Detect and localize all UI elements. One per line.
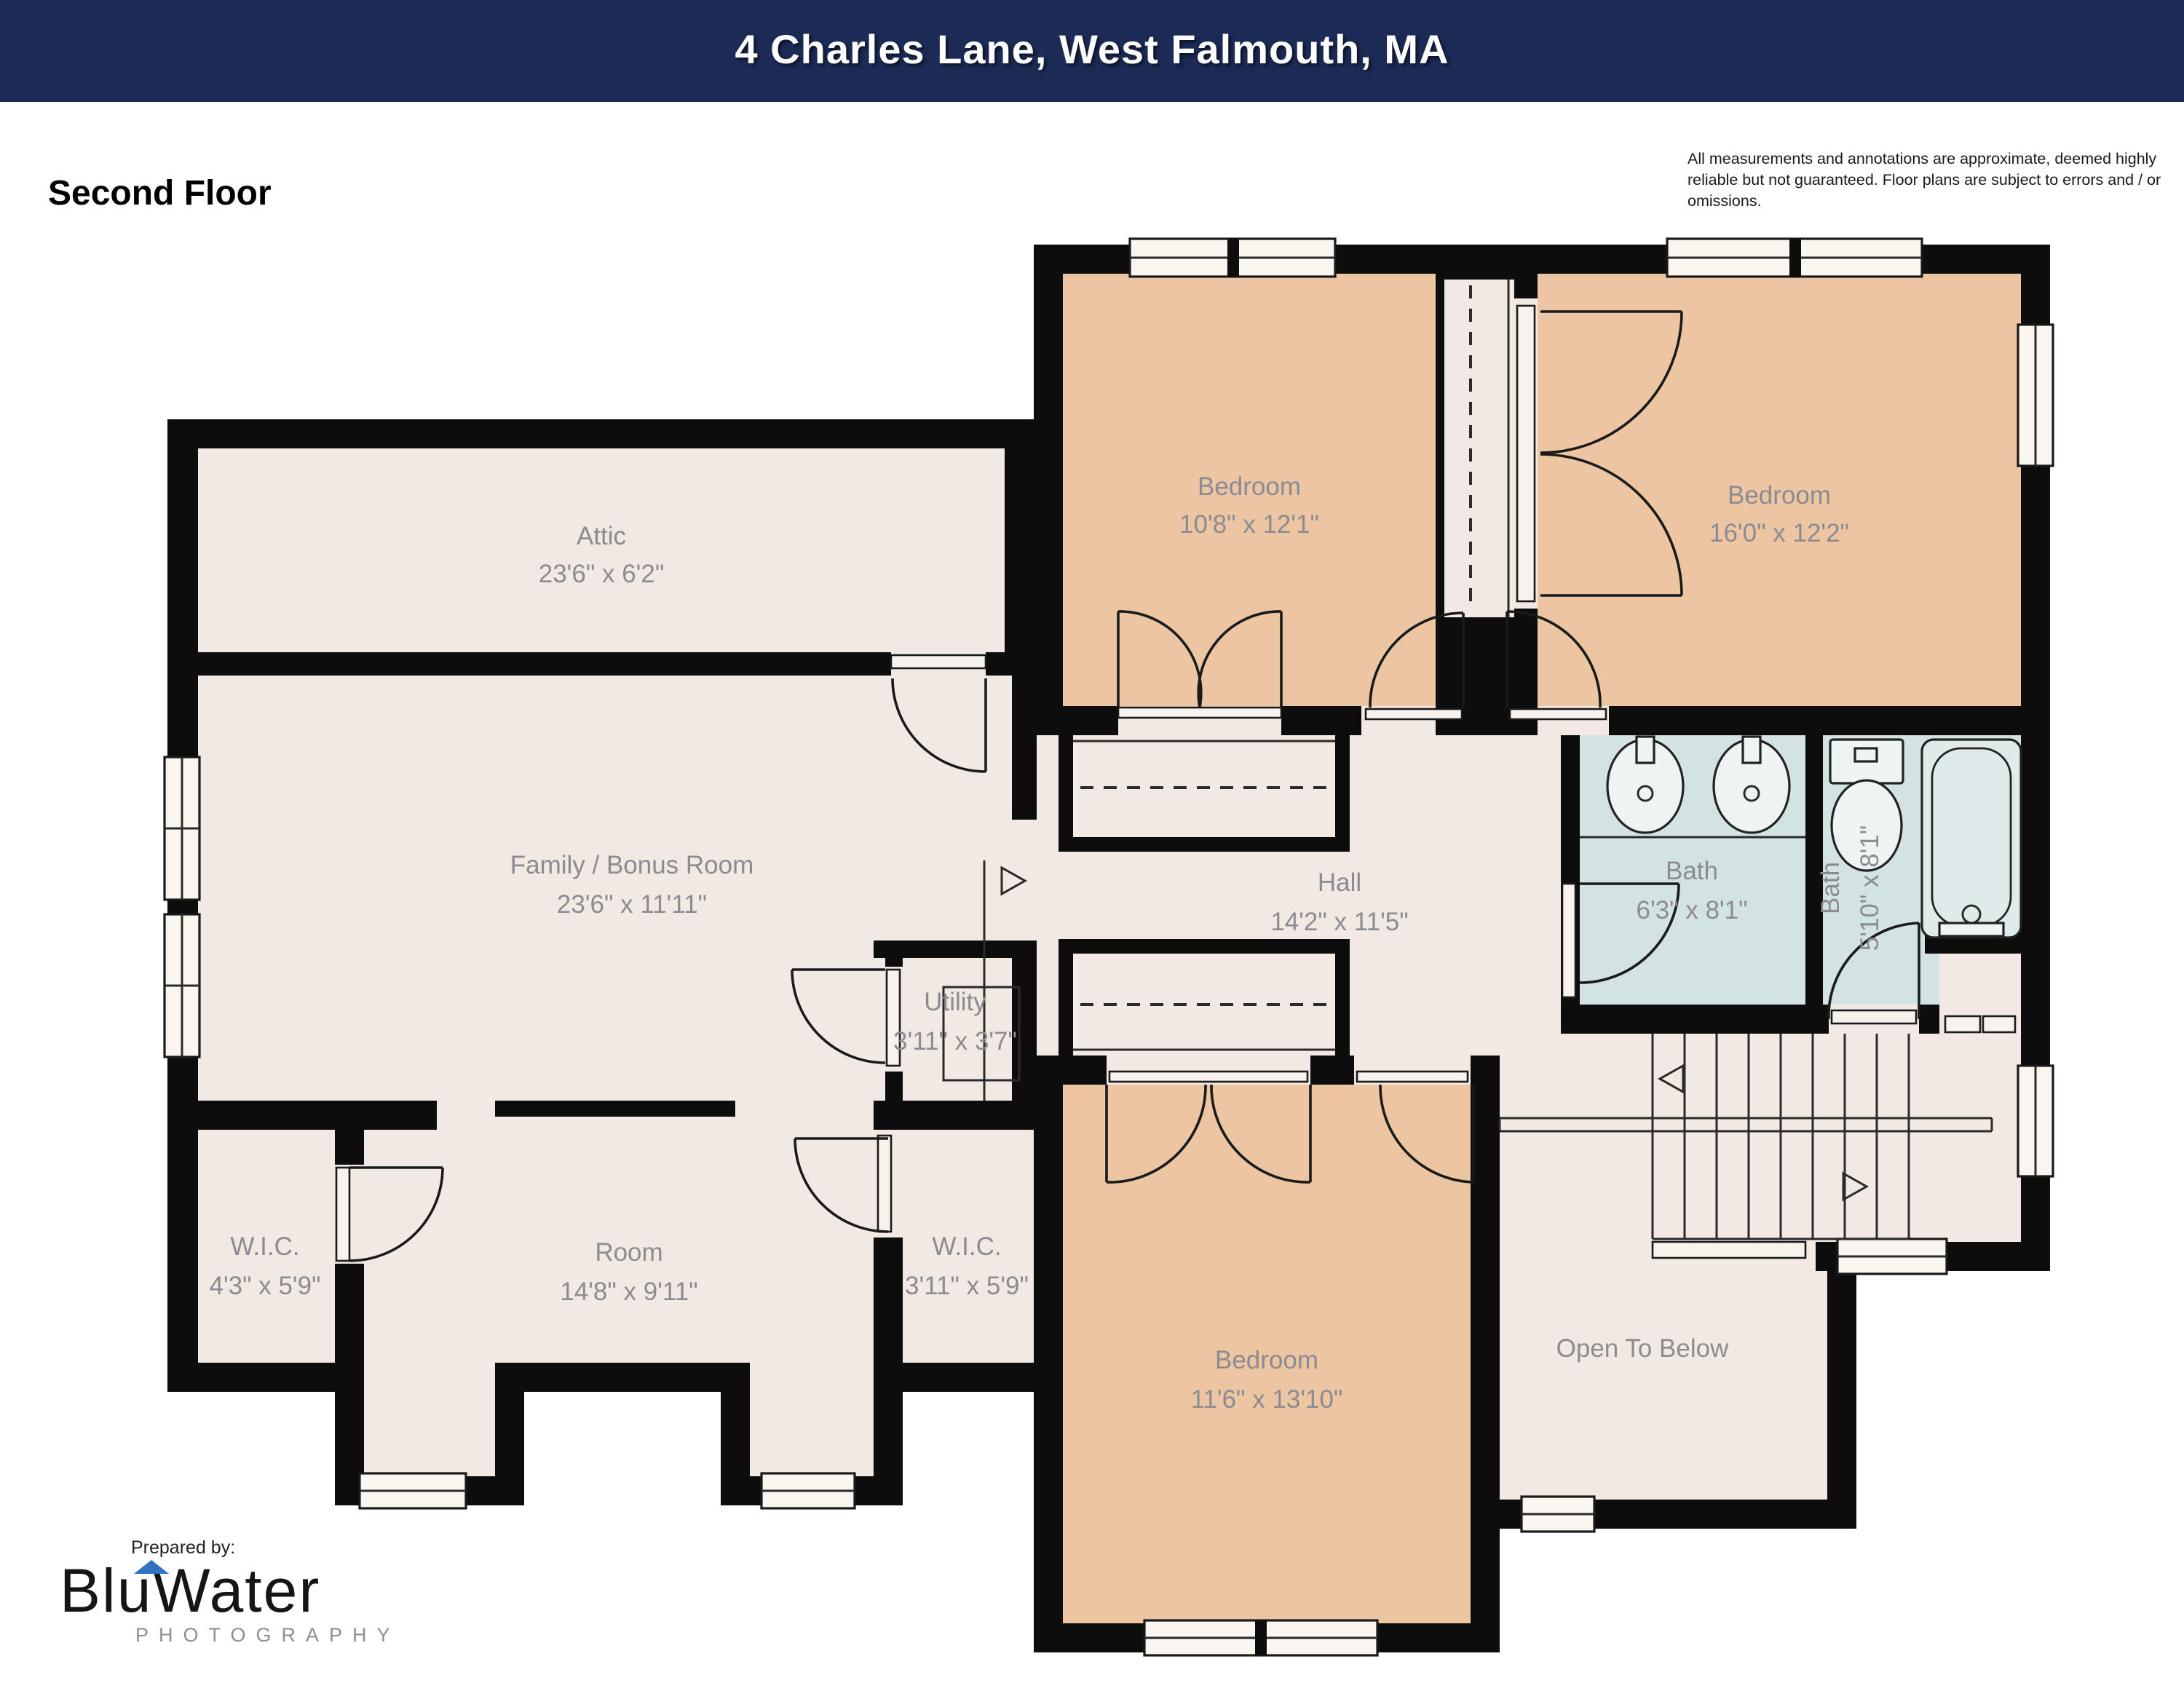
label-room-name: Room: [595, 1238, 662, 1267]
label-wic-left-dims: 4'3" x 5'9": [209, 1272, 320, 1300]
label-family-name: Family / Bonus Room: [510, 851, 754, 879]
logo-triangle-icon: [134, 1560, 169, 1574]
window-bedroom-right-side: [2018, 325, 2053, 466]
label-bath-second-name: Bath: [1816, 862, 1845, 914]
label-bedroom-bottom-name: Bedroom: [1215, 1346, 1318, 1374]
window-bedroom-right-top: [1667, 239, 1922, 277]
stair-stringer: [1653, 1242, 1805, 1258]
window-open-below: [1522, 1497, 1594, 1532]
label-room-dims: 14'8" x 9'11": [560, 1278, 697, 1306]
logo-brand: BluWater: [60, 1559, 400, 1623]
label-bedroom-tr-dims: 16'0" x 12'2": [1709, 519, 1849, 547]
label-attic-name: Attic: [577, 522, 626, 550]
label-bedroom-tl-dims: 10'8" x 12'1": [1179, 510, 1319, 539]
label-bath-main-name: Bath: [1666, 857, 1718, 885]
logo-block: Prepared by: BluWater PHOTOGRAPHY: [60, 1537, 400, 1647]
window-landing-bottom: [1837, 1239, 1947, 1274]
label-bedroom-tr-name: Bedroom: [1728, 481, 1831, 510]
label-open-to-below: Open To Below: [1556, 1334, 1729, 1363]
label-hall-dims: 14'2" x 11'5": [1270, 908, 1408, 936]
bathtub: [1922, 740, 2021, 938]
label-wic-right-dims: 3'11" x 5'9": [905, 1272, 1029, 1300]
window-bedroom-left-top: [1130, 239, 1335, 277]
linen-alcove-doors: [1945, 1016, 2015, 1032]
window-family-left-1: [165, 757, 199, 900]
label-bath-main-dims: 6'3" x 8'1": [1636, 896, 1747, 924]
floorplan-svg: Attic 23'6" x 6'2" Bedroom 10'8" x 12'1"…: [0, 0, 2184, 1687]
label-wic-left-name: W.I.C.: [230, 1232, 299, 1261]
label-utility-dims: 3'11" x 3'7": [893, 1027, 1017, 1056]
label-family-dims: 23'6" x 11'11": [557, 890, 707, 919]
window-bedroom-bottom: [1144, 1620, 1377, 1655]
label-bath-second-dims: 5'10" x 8'1": [1856, 825, 1884, 951]
label-bedroom-bottom-dims: 11'6" x 13'10": [1191, 1385, 1343, 1414]
prepared-by-label: Prepared by:: [131, 1537, 400, 1559]
label-attic-dims: 23'6" x 6'2": [539, 560, 665, 588]
window-landing-right: [2018, 1066, 2053, 1176]
floorplan-container: Attic 23'6" x 6'2" Bedroom 10'8" x 12'1"…: [0, 0, 2184, 1687]
logo-subtitle: PHOTOGRAPHY: [135, 1624, 400, 1647]
window-left-leg: [360, 1473, 466, 1508]
label-wic-right-name: W.I.C.: [932, 1232, 1001, 1261]
logo-brand-part2: Water: [152, 1556, 320, 1625]
window-right-leg: [761, 1473, 855, 1508]
label-bedroom-tl-name: Bedroom: [1198, 472, 1301, 501]
label-utility-name: Utility: [924, 988, 986, 1016]
window-family-left-2: [165, 914, 199, 1057]
label-hall-name: Hall: [1318, 868, 1361, 897]
